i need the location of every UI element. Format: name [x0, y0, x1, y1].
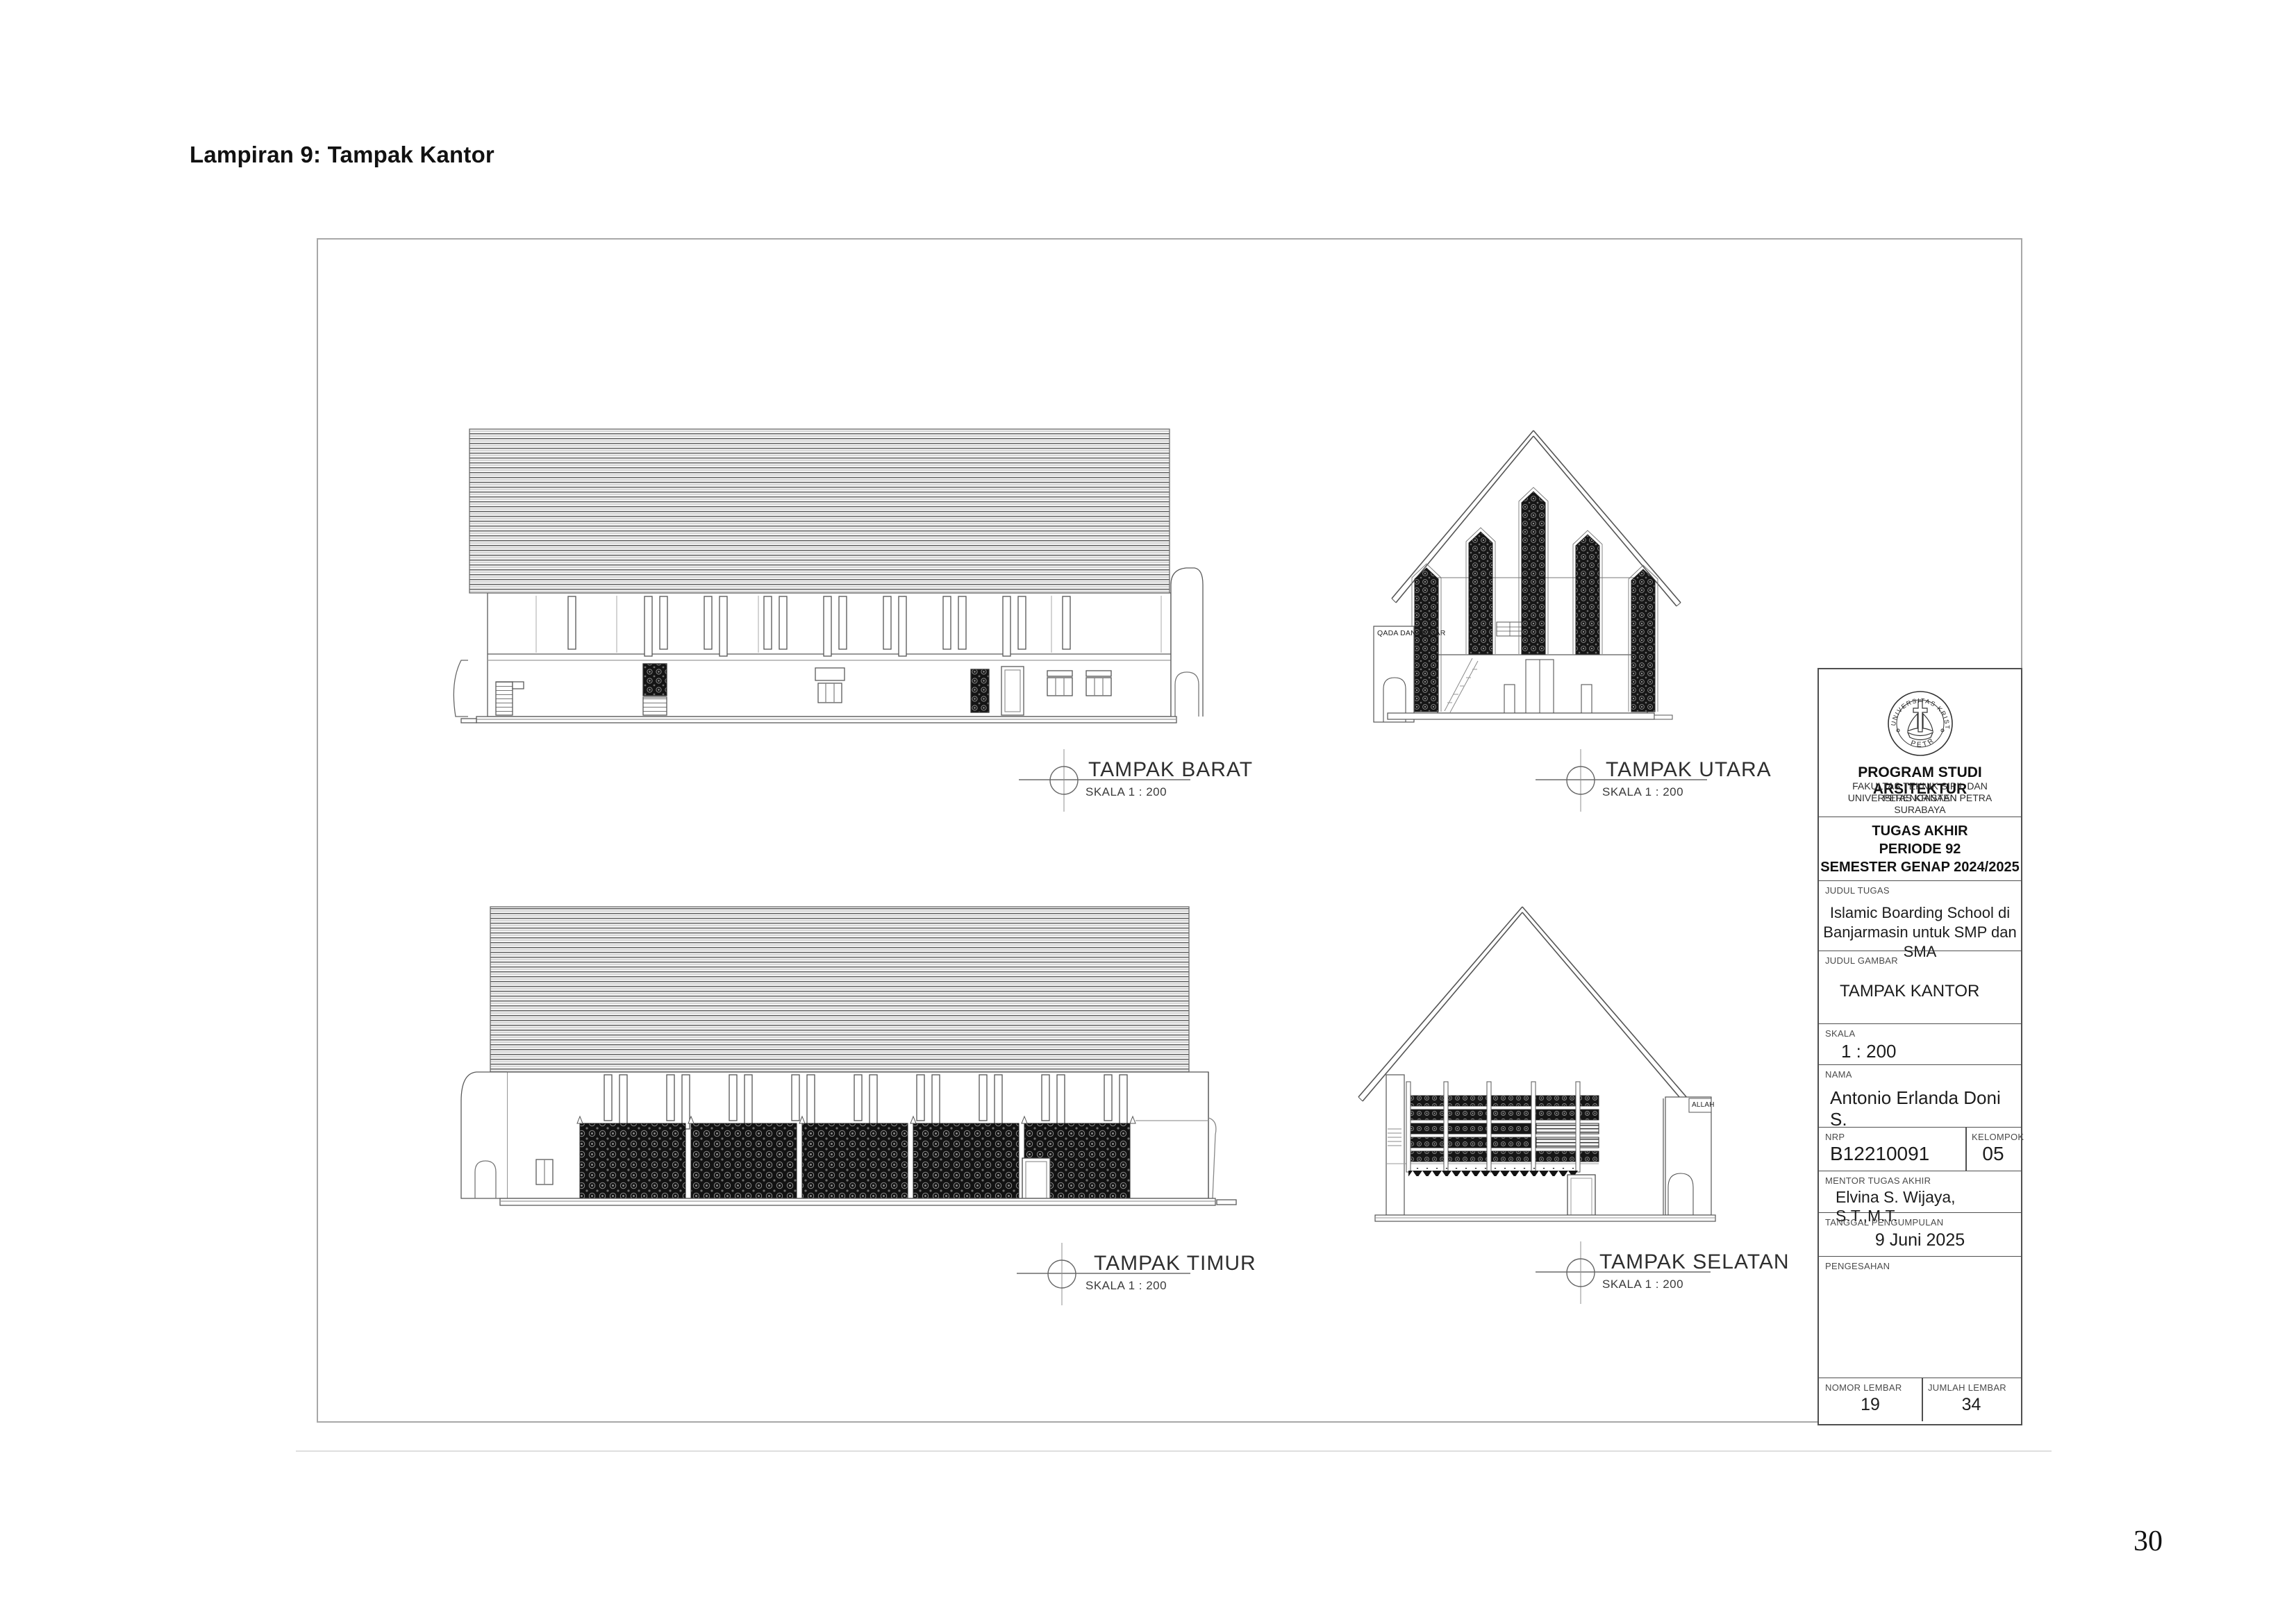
university-logo-icon: UNIVERSITAS KRISTEN PETRA: [1886, 689, 1955, 758]
caption-title-east: TAMPAK TIMUR: [1094, 1252, 1256, 1275]
course-line1: TUGAS AKHIR: [1819, 822, 2021, 841]
caption-scale-east: SKALA 1 : 200: [1085, 1279, 1167, 1293]
judul-tugas-label: JUDUL TUGAS: [1825, 885, 1890, 896]
nomor-label: NOMOR LEMBAR: [1825, 1382, 1902, 1393]
skala-value: 1 : 200: [1841, 1041, 1897, 1062]
judul-gambar-value: TAMPAK KANTOR: [1840, 982, 1979, 1001]
title-block-skala: SKALA 1 : 200: [1819, 1024, 2021, 1065]
caption-scale-north: SKALA 1 : 200: [1602, 785, 1683, 799]
jumlah-label: JUMLAH LEMBAR: [1928, 1382, 2006, 1393]
caption-scale-south: SKALA 1 : 200: [1602, 1278, 1683, 1291]
title-block-pengesahan: PENGESAHAN: [1819, 1257, 2021, 1378]
caption-scale-west: SKALA 1 : 200: [1085, 785, 1167, 799]
page-number: 30: [2133, 1525, 2163, 1558]
kelompok-label: KELOMPOK: [1972, 1132, 2024, 1142]
elevation-west-drawing: [438, 424, 1243, 736]
tanggal-value: 9 Juni 2025: [1819, 1230, 2021, 1250]
caption-title-west: TAMPAK BARAT: [1088, 758, 1253, 782]
elevation-south-drawing: [1354, 896, 1771, 1229]
skala-label: SKALA: [1825, 1028, 1855, 1039]
pengesahan-label: PENGESAHAN: [1825, 1261, 1890, 1271]
datum-circle-west-icon: [1033, 749, 1095, 812]
south-annotation-label: ALLAH: [1692, 1101, 1715, 1109]
kelompok-value: 05: [1965, 1143, 2021, 1165]
title-block-lembar: NOMOR LEMBAR 19 JUMLAH LEMBAR 34: [1819, 1378, 2021, 1421]
judul-tugas-line1: Islamic Boarding School di: [1819, 903, 2021, 923]
north-annotation-label: QADA DAN QODAR: [1377, 629, 1445, 637]
university-name: UNIVERSITAS KRISTEN PETRA: [1819, 792, 2021, 804]
title-block-course: TUGAS AKHIR PERIODE 92 SEMESTER GENAP 20…: [1819, 817, 2021, 881]
nrp-value: B12210091: [1830, 1143, 1929, 1165]
course-line2: PERIODE 92: [1819, 840, 2021, 859]
title-block-nama: NAMA Antonio Erlanda Doni S.: [1819, 1065, 2021, 1128]
nomor-value: 19: [1819, 1395, 1922, 1415]
title-block-tanggal: TANGGAL PENGUMPULAN 9 Juni 2025: [1819, 1213, 2021, 1257]
caption-title-north: TAMPAK UTARA: [1606, 758, 1772, 782]
course-line3: SEMESTER GENAP 2024/2025: [1819, 858, 2021, 877]
elevation-east-drawing: [431, 889, 1264, 1236]
nama-value: Antonio Erlanda Doni S.: [1830, 1087, 2021, 1130]
elevation-north-drawing: [1354, 403, 1771, 750]
title-block-nrp-kelompok: NRP B12210091 KELOMPOK 05: [1819, 1128, 2021, 1171]
datum-circle-north-icon: [1549, 749, 1612, 812]
judul-gambar-label: JUDUL GAMBAR: [1825, 955, 1898, 966]
title-block-judul-tugas: JUDUL TUGAS Islamic Boarding School di B…: [1819, 881, 2021, 951]
nama-label: NAMA: [1825, 1069, 1852, 1080]
jumlah-value: 34: [1922, 1395, 2021, 1415]
city-name: SURABAYA: [1819, 804, 2021, 816]
tanggal-label: TANGGAL PENGUMPULAN: [1825, 1217, 1943, 1228]
title-block-mentor: MENTOR TUGAS AKHIR Elvina S. Wijaya, S.T…: [1819, 1171, 2021, 1213]
datum-circle-east-icon: [1031, 1243, 1093, 1305]
title-block: UNIVERSITAS KRISTEN PETRA PROGRAM STUDI …: [1817, 668, 2022, 1425]
page-title: Lampiran 9: Tampak Kantor: [190, 142, 494, 168]
footer-divider: [296, 1450, 2052, 1452]
caption-title-south: TAMPAK SELATAN: [1599, 1250, 1790, 1274]
nrp-label: NRP: [1825, 1132, 1845, 1142]
mentor-label: MENTOR TUGAS AKHIR: [1825, 1175, 1931, 1186]
title-block-judul-gambar: JUDUL GAMBAR TAMPAK KANTOR: [1819, 951, 2021, 1024]
title-block-institution: UNIVERSITAS KRISTEN PETRA PROGRAM STUDI …: [1819, 669, 2021, 817]
